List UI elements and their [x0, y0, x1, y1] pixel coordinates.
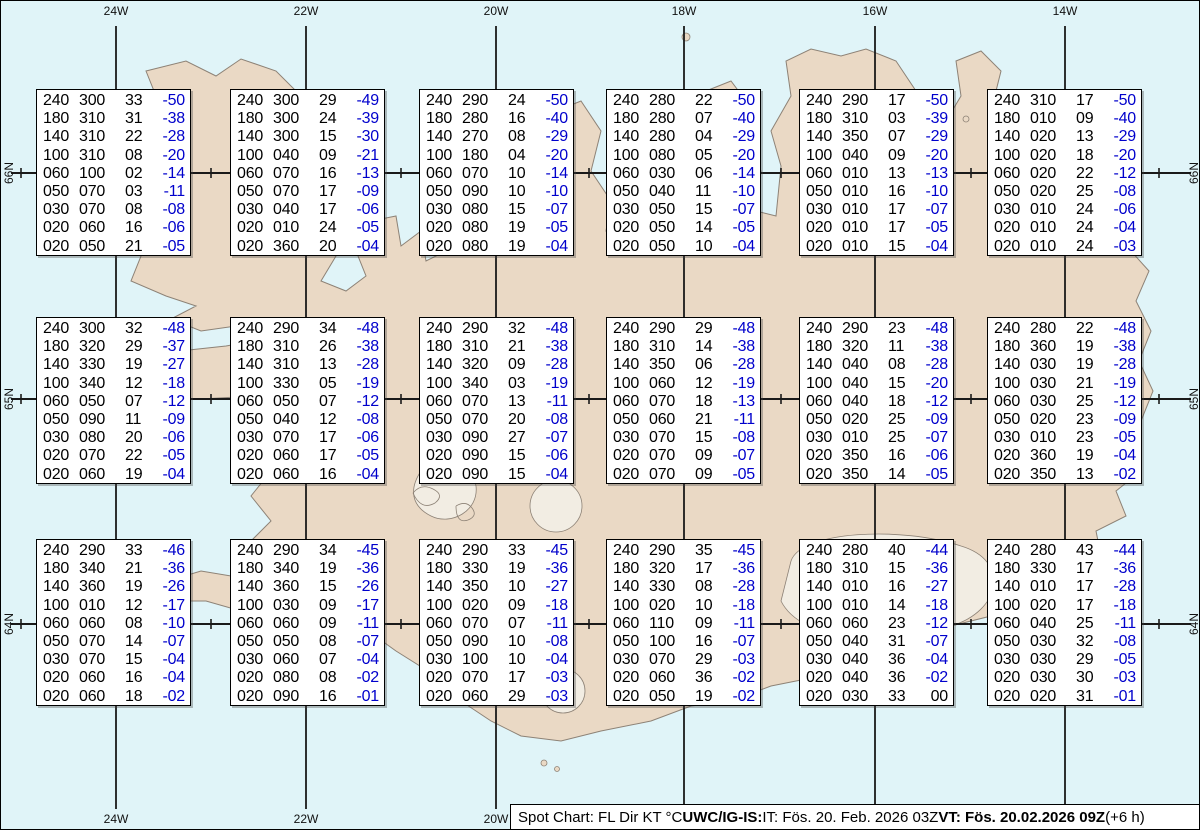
fl-cell: 100 — [994, 147, 1030, 165]
dir-cell: 040 — [649, 183, 695, 201]
spot-row: 24028022-48 — [994, 320, 1141, 338]
fl-cell: 020 — [994, 238, 1030, 256]
temp-cell: -12 — [918, 615, 953, 633]
speed-cell: 10 — [508, 633, 538, 651]
spot-row: 10001012-17 — [43, 597, 190, 615]
dir-cell: 060 — [649, 411, 695, 429]
temp-cell: -01 — [1106, 688, 1141, 706]
temp-cell: -45 — [349, 542, 384, 560]
fl-cell: 050 — [613, 183, 649, 201]
dir-cell: 010 — [842, 597, 888, 615]
dir-cell: 070 — [79, 651, 125, 669]
temp-cell: -28 — [725, 578, 760, 596]
spot-row: 10034003-19 — [426, 375, 573, 393]
spot-row: 14031022-28 — [43, 128, 190, 146]
speed-cell: 21 — [125, 238, 155, 256]
dir-cell: 280 — [462, 110, 508, 128]
spot-box: 24030033-5018031031-3814031022-281003100… — [36, 89, 191, 256]
dir-cell: 320 — [649, 560, 695, 578]
fl-cell: 180 — [43, 560, 79, 578]
island — [541, 760, 547, 766]
dir-cell: 030 — [1030, 393, 1076, 411]
temp-cell: -08 — [725, 429, 760, 447]
speed-cell: 22 — [1076, 320, 1106, 338]
dir-cell: 100 — [79, 165, 125, 183]
speed-cell: 29 — [695, 320, 725, 338]
dir-cell: 010 — [842, 219, 888, 237]
temp-cell: -48 — [918, 320, 953, 338]
fl-cell: 020 — [994, 466, 1030, 484]
speed-cell: 16 — [695, 633, 725, 651]
fl-cell: 020 — [237, 466, 273, 484]
fl-cell: 020 — [994, 447, 1030, 465]
speed-cell: 34 — [319, 542, 349, 560]
temp-cell: -09 — [918, 411, 953, 429]
temp-cell: -20 — [1106, 147, 1141, 165]
temp-cell: -05 — [1106, 651, 1141, 669]
speed-cell: 33 — [125, 542, 155, 560]
fl-cell: 140 — [43, 128, 79, 146]
spot-row: 24028022-50 — [613, 92, 760, 110]
spot-row: 02009015-06 — [426, 447, 573, 465]
temp-cell: -11 — [155, 183, 190, 201]
spot-row: 02035016-06 — [806, 447, 953, 465]
fl-cell: 180 — [994, 560, 1030, 578]
spot-row: 03008015-07 — [426, 201, 573, 219]
fl-cell: 180 — [613, 110, 649, 128]
speed-cell: 08 — [125, 615, 155, 633]
temp-cell: -26 — [349, 578, 384, 596]
spot-row: 24030029-49 — [237, 92, 384, 110]
dir-cell: 360 — [1030, 338, 1076, 356]
speed-cell: 19 — [508, 560, 538, 578]
spot-row: 14035007-29 — [806, 128, 953, 146]
speed-cell: 08 — [125, 201, 155, 219]
speed-cell: 15 — [508, 201, 538, 219]
temp-cell: -27 — [538, 578, 573, 596]
temp-cell: -17 — [349, 597, 384, 615]
speed-cell: 09 — [695, 447, 725, 465]
spot-row: 05006021-11 — [613, 411, 760, 429]
dir-cell: 290 — [79, 542, 125, 560]
temp-cell: -44 — [1106, 542, 1141, 560]
dir-cell: 080 — [462, 238, 508, 256]
speed-cell: 08 — [888, 356, 918, 374]
dir-cell: 040 — [842, 669, 888, 687]
speed-cell: 09 — [319, 597, 349, 615]
fl-cell: 100 — [806, 375, 842, 393]
spot-row: 24029033-46 — [43, 542, 190, 560]
speed-cell: 24 — [319, 110, 349, 128]
spot-row: 05001016-10 — [806, 183, 953, 201]
fl-cell: 030 — [426, 651, 462, 669]
speed-cell: 10 — [695, 238, 725, 256]
speed-cell: 02 — [125, 165, 155, 183]
spot-row: 02006016-04 — [237, 466, 384, 484]
speed-cell: 17 — [508, 669, 538, 687]
fl-cell: 020 — [613, 466, 649, 484]
fl-cell: 060 — [43, 165, 79, 183]
fl-cell: 180 — [43, 338, 79, 356]
temp-cell: -08 — [349, 411, 384, 429]
temp-cell: -27 — [155, 356, 190, 374]
spot-box: 24028022-5018028007-4014028004-291000800… — [606, 89, 761, 256]
temp-cell: -29 — [1106, 128, 1141, 146]
fl-cell: 240 — [994, 320, 1030, 338]
temp-cell: -48 — [538, 320, 573, 338]
speed-cell: 29 — [508, 688, 538, 706]
speed-cell: 19 — [508, 238, 538, 256]
dir-cell: 070 — [649, 447, 695, 465]
fl-cell: 020 — [237, 447, 273, 465]
temp-cell: -28 — [538, 356, 573, 374]
speed-cell: 19 — [319, 560, 349, 578]
spot-row: 02008019-05 — [426, 219, 573, 237]
temp-cell: -38 — [918, 338, 953, 356]
spot-row: 06005007-12 — [43, 393, 190, 411]
spot-row: 02002031-01 — [994, 688, 1141, 706]
spot-box: 24028043-4418033017-3614001017-281000201… — [987, 539, 1142, 706]
speed-cell: 40 — [888, 542, 918, 560]
temp-cell: -11 — [538, 393, 573, 411]
spot-row: 10006012-19 — [613, 375, 760, 393]
spot-row: 10002017-18 — [994, 597, 1141, 615]
dir-cell: 350 — [1030, 466, 1076, 484]
status-bar: Spot Chart: FL Dir KT °C UWC/IG-IS: IT: … — [510, 804, 1200, 830]
temp-cell: -07 — [349, 633, 384, 651]
fl-cell: 020 — [426, 669, 462, 687]
dir-cell: 040 — [842, 356, 888, 374]
fl-cell: 100 — [426, 597, 462, 615]
fl-cell: 030 — [43, 201, 79, 219]
spot-row: 06011009-11 — [613, 615, 760, 633]
dir-cell: 020 — [1030, 597, 1076, 615]
speed-cell: 34 — [319, 320, 349, 338]
spot-row: 14028004-29 — [613, 128, 760, 146]
speed-cell: 04 — [695, 128, 725, 146]
temp-cell: -38 — [538, 338, 573, 356]
fl-cell: 050 — [806, 633, 842, 651]
speed-cell: 08 — [319, 633, 349, 651]
dir-cell: 310 — [842, 110, 888, 128]
temp-cell: -08 — [1106, 633, 1141, 651]
temp-cell: -06 — [349, 201, 384, 219]
dir-cell: 070 — [79, 201, 125, 219]
speed-cell: 21 — [125, 560, 155, 578]
temp-cell: -45 — [725, 542, 760, 560]
spot-row: 06010002-14 — [43, 165, 190, 183]
dir-cell: 050 — [273, 393, 319, 411]
fl-cell: 060 — [994, 393, 1030, 411]
dir-cell: 030 — [1030, 375, 1076, 393]
fl-cell: 020 — [237, 238, 273, 256]
spot-row: 02036020-04 — [237, 238, 384, 256]
speed-cell: 13 — [319, 356, 349, 374]
fl-cell: 050 — [994, 411, 1030, 429]
fl-cell: 060 — [613, 615, 649, 633]
speed-cell: 21 — [695, 411, 725, 429]
temp-cell: -04 — [155, 466, 190, 484]
speed-cell: 03 — [125, 183, 155, 201]
spot-row: 14002013-29 — [994, 128, 1141, 146]
spot-row: 18034021-36 — [43, 560, 190, 578]
speed-cell: 20 — [319, 238, 349, 256]
speed-cell: 36 — [888, 651, 918, 669]
speed-cell: 14 — [888, 466, 918, 484]
speed-cell: 23 — [1076, 411, 1106, 429]
dir-cell: 080 — [273, 669, 319, 687]
dir-cell: 320 — [79, 338, 125, 356]
fl-cell: 020 — [237, 688, 273, 706]
speed-cell: 09 — [695, 466, 725, 484]
dir-cell: 020 — [1030, 411, 1076, 429]
temp-cell: -18 — [538, 597, 573, 615]
dir-cell: 320 — [842, 338, 888, 356]
temp-cell: -07 — [918, 633, 953, 651]
status-text-suffix: (+6 h) — [1105, 809, 1145, 826]
spot-row: 06007018-13 — [613, 393, 760, 411]
temp-cell: -29 — [918, 128, 953, 146]
spot-row: 02005010-04 — [613, 238, 760, 256]
spot-row: 02006016-04 — [43, 669, 190, 687]
fl-cell: 030 — [994, 429, 1030, 447]
speed-cell: 18 — [888, 393, 918, 411]
spot-row: 24030033-50 — [43, 92, 190, 110]
fl-cell: 060 — [994, 165, 1030, 183]
speed-cell: 13 — [508, 393, 538, 411]
dir-cell: 060 — [273, 651, 319, 669]
speed-cell: 10 — [508, 165, 538, 183]
fl-cell: 240 — [613, 320, 649, 338]
spot-row: 24029034-48 — [237, 320, 384, 338]
spot-row: 10004009-21 — [237, 147, 384, 165]
spot-row: 06004018-12 — [806, 393, 953, 411]
dir-cell: 290 — [842, 320, 888, 338]
speed-cell: 11 — [125, 411, 155, 429]
spot-box: 24029029-4818031014-3814035006-281000601… — [606, 317, 761, 484]
fl-cell: 240 — [237, 320, 273, 338]
spot-row: 02035014-05 — [806, 466, 953, 484]
spot-row: 06007007-11 — [426, 615, 573, 633]
dir-cell: 180 — [462, 147, 508, 165]
spot-row: 10034012-18 — [43, 375, 190, 393]
fl-cell: 030 — [43, 651, 79, 669]
spot-box: 24029023-4818032011-3814004008-281000401… — [799, 317, 954, 484]
fl-cell: 050 — [237, 183, 273, 201]
fl-cell: 100 — [806, 147, 842, 165]
spot-row: 14003019-28 — [994, 356, 1141, 374]
temp-cell: -07 — [538, 201, 573, 219]
fl-cell: 060 — [237, 393, 273, 411]
temp-cell: -14 — [538, 165, 573, 183]
fl-cell: 050 — [43, 411, 79, 429]
dir-cell: 290 — [842, 92, 888, 110]
spot-row: 10002009-18 — [426, 597, 573, 615]
spot-row: 14035010-27 — [426, 578, 573, 596]
speed-cell: 09 — [695, 615, 725, 633]
spot-row: 14001016-27 — [806, 578, 953, 596]
dir-cell: 070 — [462, 615, 508, 633]
spot-row: 14035006-28 — [613, 356, 760, 374]
spot-row: 03005015-07 — [613, 201, 760, 219]
spot-row: 06006009-11 — [237, 615, 384, 633]
spot-row: 03009027-07 — [426, 429, 573, 447]
speed-cell: 15 — [888, 375, 918, 393]
temp-cell: -02 — [725, 669, 760, 687]
temp-cell: -03 — [538, 669, 573, 687]
dir-cell: 330 — [649, 578, 695, 596]
spot-row: 10002010-18 — [613, 597, 760, 615]
fl-cell: 240 — [806, 320, 842, 338]
speed-cell: 19 — [508, 219, 538, 237]
temp-cell: -28 — [725, 356, 760, 374]
dir-cell: 020 — [1030, 165, 1076, 183]
fl-cell: 060 — [806, 615, 842, 633]
dir-cell: 310 — [273, 356, 319, 374]
fl-cell: 240 — [806, 92, 842, 110]
spot-row: 14031013-28 — [237, 356, 384, 374]
dir-cell: 050 — [649, 219, 695, 237]
temp-cell: -50 — [918, 92, 953, 110]
dir-cell: 030 — [1030, 633, 1076, 651]
spot-row: 02005021-05 — [43, 238, 190, 256]
island — [682, 33, 690, 41]
dir-cell: 060 — [649, 375, 695, 393]
dir-cell: 070 — [462, 393, 508, 411]
temp-cell: -27 — [918, 578, 953, 596]
speed-cell: 08 — [695, 578, 725, 596]
spot-row: 06007016-13 — [237, 165, 384, 183]
dir-cell: 310 — [649, 338, 695, 356]
spot-row: 03007015-08 — [613, 429, 760, 447]
speed-cell: 14 — [125, 633, 155, 651]
status-issue-time: IT: Fös. 20. Feb. 2026 03Z — [762, 809, 938, 826]
speed-cell: 06 — [695, 356, 725, 374]
dir-cell: 010 — [273, 219, 319, 237]
fl-cell: 030 — [806, 201, 842, 219]
dir-cell: 350 — [842, 128, 888, 146]
dir-cell: 010 — [842, 165, 888, 183]
speed-cell: 18 — [125, 688, 155, 706]
speed-cell: 13 — [1076, 466, 1106, 484]
temp-cell: -03 — [538, 688, 573, 706]
dir-cell: 310 — [462, 338, 508, 356]
spot-row: 02007009-05 — [613, 466, 760, 484]
speed-cell: 13 — [1076, 128, 1106, 146]
spot-box: 24029034-4518034019-3614036015-261000300… — [230, 539, 385, 706]
fl-cell: 140 — [237, 128, 273, 146]
fl-cell: 100 — [613, 597, 649, 615]
temp-cell: -48 — [725, 320, 760, 338]
temp-cell: -13 — [349, 165, 384, 183]
spot-row: 18036019-38 — [994, 338, 1141, 356]
fl-cell: 140 — [426, 128, 462, 146]
fl-cell: 050 — [237, 411, 273, 429]
speed-cell: 17 — [319, 447, 349, 465]
dir-cell: 070 — [79, 447, 125, 465]
temp-cell: -05 — [349, 447, 384, 465]
spot-row: 06003006-14 — [613, 165, 760, 183]
speed-cell: 07 — [508, 615, 538, 633]
spot-row: 24029024-50 — [426, 92, 573, 110]
spot-row: 24029029-48 — [613, 320, 760, 338]
fl-cell: 020 — [613, 219, 649, 237]
temp-cell: -14 — [725, 165, 760, 183]
dir-cell: 090 — [462, 447, 508, 465]
speed-cell: 25 — [1076, 183, 1106, 201]
spot-row: 02003030-03 — [994, 669, 1141, 687]
lon-label-top: 18W — [672, 4, 697, 18]
speed-cell: 14 — [695, 219, 725, 237]
dir-cell: 280 — [649, 128, 695, 146]
spot-row: 18031003-39 — [806, 110, 953, 128]
speed-cell: 21 — [1076, 375, 1106, 393]
spot-row: 05002023-09 — [994, 411, 1141, 429]
temp-cell: -18 — [1106, 597, 1141, 615]
contour-line — [456, 503, 474, 520]
dir-cell: 300 — [273, 92, 319, 110]
temp-cell: -36 — [725, 560, 760, 578]
fl-cell: 100 — [43, 147, 79, 165]
fl-cell: 140 — [237, 578, 273, 596]
fl-cell: 140 — [613, 356, 649, 374]
spot-row: 24031017-50 — [994, 92, 1141, 110]
spot-row: 05009010-08 — [426, 633, 573, 651]
speed-cell: 29 — [695, 651, 725, 669]
speed-cell: 10 — [508, 183, 538, 201]
lon-label-top: 14W — [1053, 4, 1078, 18]
speed-cell: 07 — [125, 393, 155, 411]
speed-cell: 22 — [695, 92, 725, 110]
speed-cell: 15 — [888, 560, 918, 578]
spot-row: 24028040-44 — [806, 542, 953, 560]
speed-cell: 25 — [1076, 393, 1106, 411]
lat-label-left: 66N — [2, 162, 16, 184]
temp-cell: -18 — [918, 597, 953, 615]
spot-row: 18031026-38 — [237, 338, 384, 356]
spot-row: 24028043-44 — [994, 542, 1141, 560]
temp-cell: -04 — [538, 651, 573, 669]
fl-cell: 060 — [237, 615, 273, 633]
fl-cell: 030 — [613, 429, 649, 447]
fl-cell: 180 — [806, 110, 842, 128]
speed-cell: 16 — [888, 183, 918, 201]
temp-cell: -19 — [349, 375, 384, 393]
spot-row: 0200303300 — [806, 688, 953, 706]
speed-cell: 15 — [508, 466, 538, 484]
fl-cell: 020 — [43, 219, 79, 237]
fl-cell: 050 — [613, 411, 649, 429]
speed-cell: 31 — [888, 633, 918, 651]
temp-cell: -38 — [349, 338, 384, 356]
speed-cell: 36 — [888, 669, 918, 687]
dir-cell: 040 — [842, 633, 888, 651]
dir-cell: 090 — [462, 466, 508, 484]
temp-cell: -04 — [1106, 219, 1141, 237]
spot-row: 02001024-04 — [994, 219, 1141, 237]
speed-cell: 07 — [888, 128, 918, 146]
speed-cell: 12 — [125, 375, 155, 393]
dir-cell: 310 — [79, 147, 125, 165]
fl-cell: 050 — [426, 633, 462, 651]
temp-cell: -48 — [155, 320, 190, 338]
dir-cell: 070 — [649, 651, 695, 669]
temp-cell: -04 — [538, 466, 573, 484]
spot-row: 18032017-36 — [613, 560, 760, 578]
speed-cell: 33 — [125, 92, 155, 110]
temp-cell: -04 — [349, 466, 384, 484]
speed-cell: 18 — [695, 393, 725, 411]
